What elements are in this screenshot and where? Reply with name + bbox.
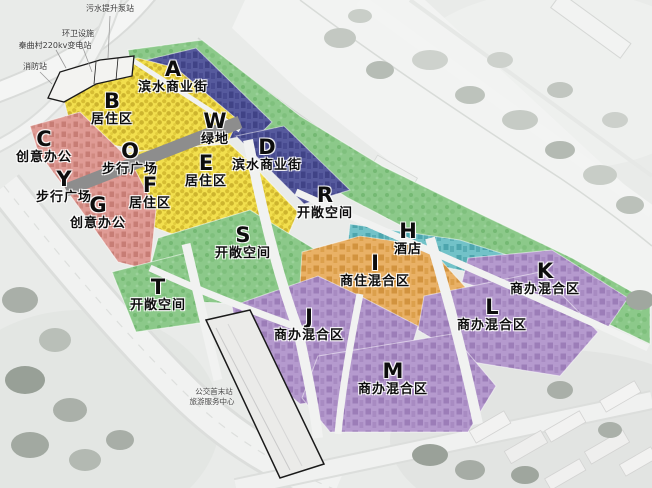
facility-label-substation: 秦曲村220kv变电站 [19,40,92,51]
site-plan-canvas [0,0,652,488]
facility-label-fire-station: 消防站 [23,61,47,72]
facility-label-tourist-service-center: 旅游服务中心 [190,396,235,407]
facility-label-sanitation-facility: 环卫设施 [62,28,94,39]
site-plan-image: A滨水商业街 B居住区 C创意办公 O步行广场 Y步行广场 G创意办公 W绿地 … [0,0,652,488]
facility-label-sewage-pump-station: 污水提升泵站 [86,3,134,14]
